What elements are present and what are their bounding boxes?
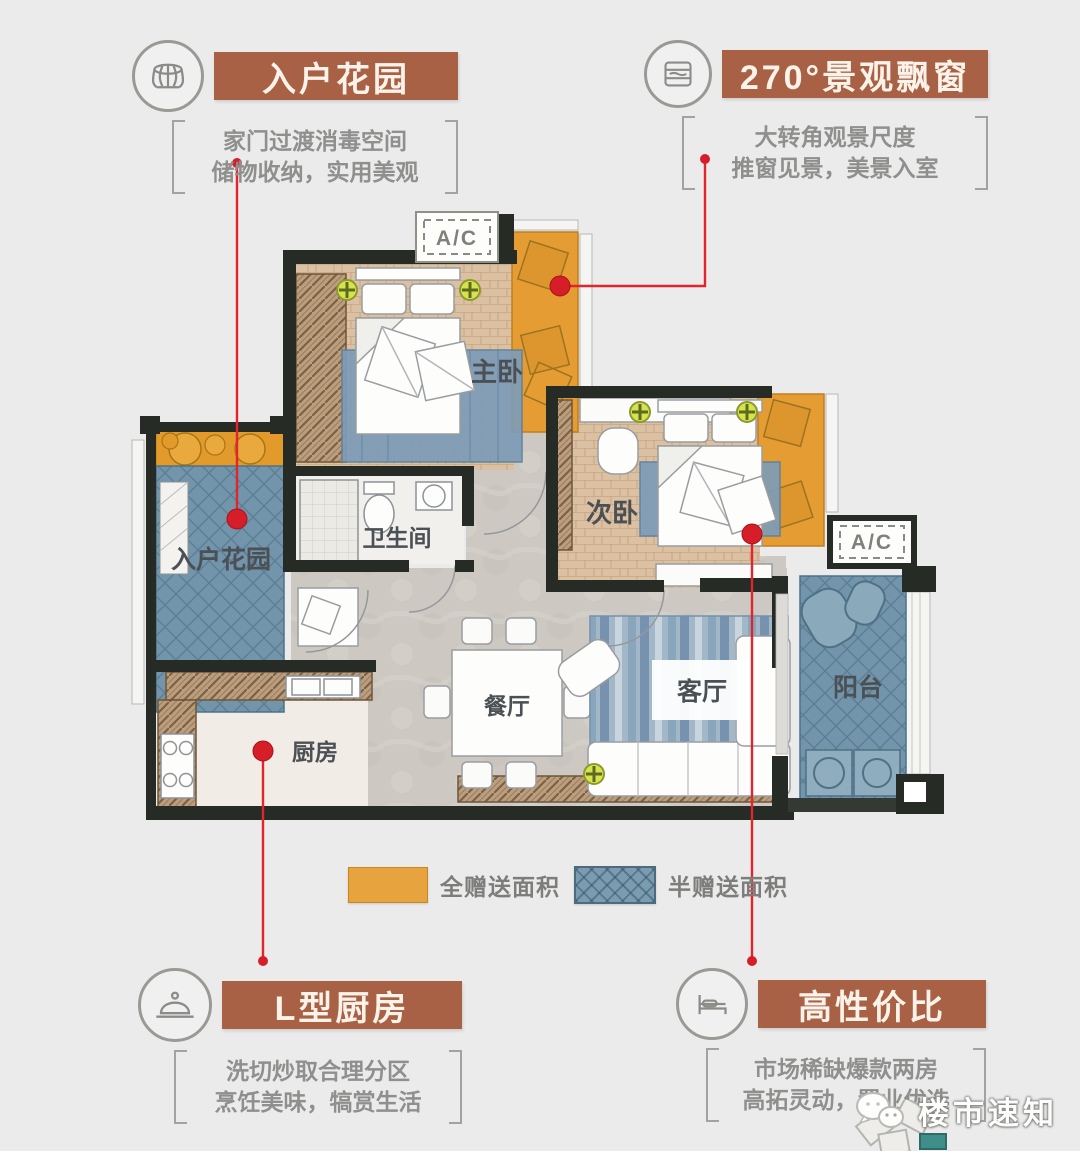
label-dining: 餐厅 (484, 693, 530, 719)
full-gift-label: 全赠送面积 (440, 868, 560, 902)
legend-item-full-gift: 全赠送面积 (348, 867, 560, 903)
badge-title: L型厨房 (222, 981, 462, 1029)
badge-kitchen: L型厨房 洗切炒取合理分区 烹饪美味，犒赏生活 (138, 968, 462, 1124)
balcony-curtain (776, 594, 788, 754)
floorplan-poster: A/C A/C 主卧 次卧 卫生间 入户花园 厨房 餐厅 客厅 阳台 (0, 0, 1080, 1151)
badge-description: 大转角观景尺度 推窗见景，美景入室 (682, 116, 988, 190)
wechat-icon (852, 1089, 908, 1133)
badge-title: 入户花园 (214, 52, 458, 100)
bed-icon (676, 968, 748, 1040)
entry-hall-furniture (298, 588, 368, 652)
half-gift-swatch (574, 866, 656, 904)
ac-unit-top: A/C (416, 212, 498, 262)
watermark-text: 楼市速知 (918, 1088, 1058, 1133)
badge-title: 270°景观飘窗 (722, 50, 988, 98)
label-master: 主卧 (471, 357, 523, 387)
label-kitchen: 厨房 (292, 739, 338, 765)
ac-label-top: A/C (436, 227, 478, 250)
badge-description: 洗切炒取合理分区 烹饪美味，犒赏生活 (174, 1050, 462, 1124)
badge-entry-garden: 入户花园 家门过渡消毒空间 储物收纳，实用美观 (132, 40, 458, 194)
legend-item-half-gift: 半赠送面积 (574, 866, 788, 904)
ac-unit-right: A/C (830, 518, 914, 566)
badge-bay-window: 270°景观飘窗 大转角观景尺度 推窗见景，美景入室 (644, 40, 988, 190)
cloche-icon (138, 968, 212, 1042)
label-second: 次卧 (586, 498, 638, 528)
label-entry: 入户花园 (171, 545, 271, 574)
kitchen-floor (196, 698, 368, 806)
basket-icon (132, 40, 204, 112)
half-gift-label: 半赠送面积 (668, 868, 788, 902)
full-gift-swatch (348, 867, 428, 903)
ac-label-right: A/C (851, 531, 893, 554)
legend: 全赠送面积 半赠送面积 (348, 866, 788, 904)
watermark: 楼市速知 (852, 1088, 1058, 1133)
badge-title: 高性价比 (758, 980, 986, 1028)
label-balcony: 阳台 (833, 673, 883, 702)
label-bath: 卫生间 (363, 525, 432, 551)
window-icon (644, 40, 712, 108)
label-living: 客厅 (677, 677, 727, 706)
badge-description: 家门过渡消毒空间 储物收纳，实用美观 (172, 120, 458, 194)
